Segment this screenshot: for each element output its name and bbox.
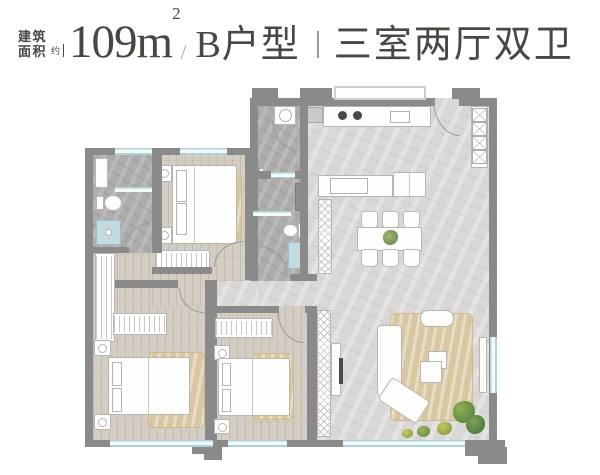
cabinet-cell-icon	[472, 122, 487, 136]
wall-protrusion-bottom-right	[465, 447, 507, 456]
nightstand	[94, 340, 111, 356]
window-living-room-right	[490, 337, 497, 393]
glass-utility	[271, 172, 295, 178]
pillow	[222, 363, 231, 386]
tv-icon	[339, 358, 343, 384]
pillow	[222, 389, 231, 412]
window-seat	[479, 337, 487, 393]
pillow	[176, 203, 187, 235]
neighbor-unit-outline	[334, 86, 426, 100]
cabinet-cell-icon	[472, 136, 487, 150]
exterior-wall-right	[489, 98, 497, 447]
window-bathroom1	[115, 148, 152, 155]
coffee-table	[420, 361, 442, 383]
cabinet-cell-icon	[472, 150, 487, 164]
pillow	[112, 362, 122, 386]
blanket-fold-line	[148, 358, 149, 414]
wall-protrusion-bottom-center	[204, 453, 222, 460]
wall-bathroom2-bottom	[290, 274, 317, 281]
wall-stub-top	[252, 88, 278, 99]
window-bedroom2	[180, 148, 227, 155]
wall-stub-top	[300, 88, 332, 99]
glass-partition-bathroom1	[115, 187, 152, 192]
wall-utility-right	[300, 106, 308, 171]
wall-bedroom3-right	[307, 306, 317, 440]
wall-utility-bottom	[295, 171, 308, 179]
wall-bathroom1-right	[152, 148, 162, 253]
toilet-bowl	[104, 195, 122, 211]
vanity-cabinet	[95, 158, 108, 188]
window-master-bedroom	[110, 440, 213, 447]
wall-protrusion-bottom-right	[478, 456, 507, 464]
shower-drain-icon	[105, 229, 112, 236]
wardrobe-master-vertical	[95, 253, 115, 342]
storage-cabinet-lattice	[318, 199, 332, 274]
exterior-wall-left	[85, 148, 93, 447]
ottoman-bench	[420, 310, 454, 327]
refrigerator-door-line	[409, 173, 410, 196]
storage-cabinet-lattice	[317, 310, 331, 437]
dining-chair	[361, 249, 378, 267]
nightstand	[94, 414, 111, 430]
wall-between-bedrooms	[205, 286, 217, 440]
window-living-room	[343, 440, 465, 447]
pillow	[112, 388, 122, 412]
blanket-fold-line	[252, 359, 253, 415]
stove-burner-icon	[353, 111, 362, 120]
toilet-bowl	[283, 224, 298, 237]
toilet-tank	[96, 196, 104, 210]
stove-burner-icon	[338, 111, 347, 120]
wardrobe-master-horizontal	[113, 313, 167, 335]
pillow	[176, 170, 187, 202]
wall-bedroom3-top	[217, 306, 279, 313]
dining-chair	[382, 249, 399, 267]
kitchen-sink	[390, 111, 410, 123]
lamp-icon	[98, 418, 107, 427]
window-bedroom3	[228, 440, 287, 447]
glass-partition-bathroom2	[253, 211, 291, 216]
exterior-wall-top-left	[85, 148, 257, 155]
wall-bedroom2-bottom	[245, 267, 258, 274]
nightstand	[214, 419, 230, 434]
lamp-icon	[98, 344, 107, 353]
wall-bathroom2-right	[300, 179, 308, 281]
lamp-icon	[218, 349, 227, 358]
floorplan-page: { "header": { "building_area_label_line1…	[0, 0, 600, 475]
floor-plan	[0, 0, 600, 475]
wardrobe-bedroom3	[215, 318, 273, 338]
wall-bedroom2-bottom	[152, 267, 212, 274]
wall-master-top	[115, 280, 178, 288]
wall-utility-bottom	[250, 171, 271, 179]
island-sink	[330, 178, 368, 194]
cabinet-cell-icon	[472, 108, 487, 122]
blanket-fold-line	[194, 167, 195, 242]
lamp-icon	[218, 423, 227, 432]
dining-chair	[403, 249, 420, 267]
wall-stub-top	[452, 88, 480, 99]
